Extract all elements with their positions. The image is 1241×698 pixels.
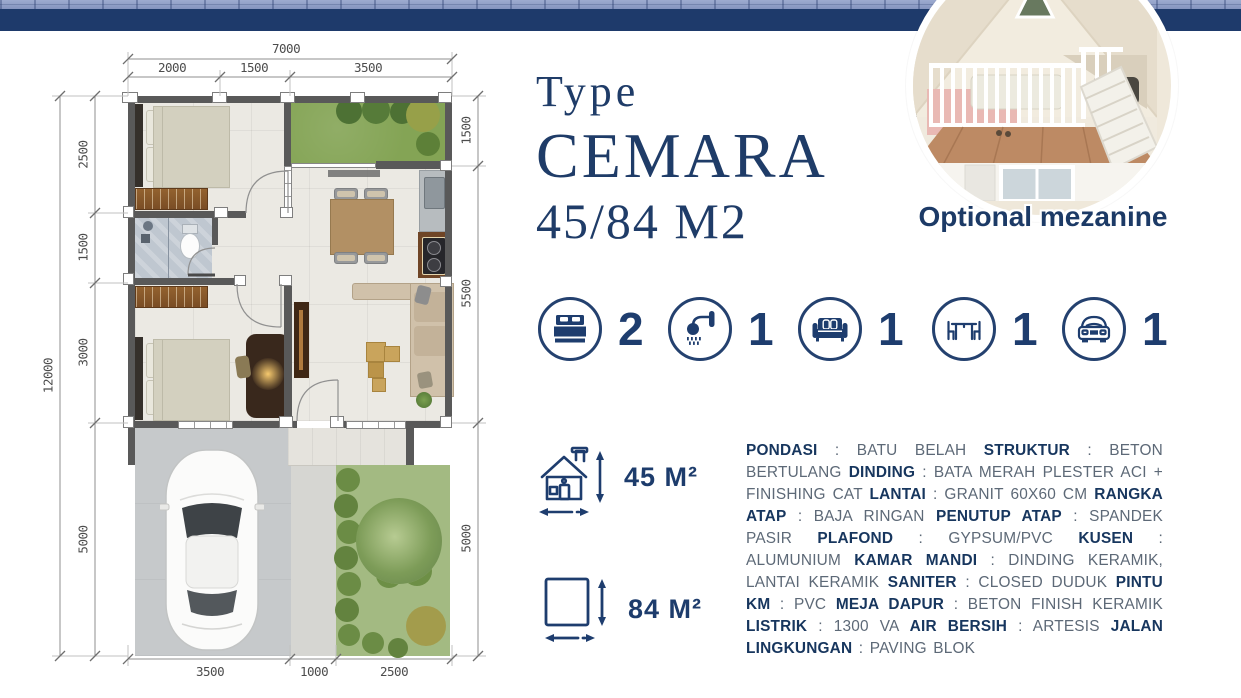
- feature-living-room: [798, 297, 862, 361]
- dim-left-seg: 2500: [76, 133, 91, 177]
- building-area-icon: [536, 446, 612, 522]
- living-room-count: 1: [878, 297, 904, 361]
- dining-table-icon: [944, 313, 984, 345]
- dim-right-seg: 1500: [459, 109, 474, 153]
- house-type-name: CEMARA: [536, 124, 828, 188]
- dim-bottom-seg: 3500: [196, 664, 224, 679]
- feature-bedrooms: [538, 297, 602, 361]
- floor-plan: 7000 2000 1500 3500 12000 2500 1500 3000…: [0, 0, 520, 698]
- feature-dining-set: [932, 297, 996, 361]
- specs-paragraph: PONDASI : BATU BELAH STRUKTUR : BETON BE…: [746, 440, 1163, 660]
- dim-right-seg: 5000: [459, 517, 474, 561]
- bed-icon: [550, 313, 590, 345]
- dim-bottom-seg: 2500: [380, 664, 408, 679]
- mezzanine-photo-art: [913, 0, 1157, 201]
- car-icon: [1074, 313, 1114, 345]
- land-area-label: 84 M²: [628, 594, 702, 625]
- feature-carport: [1062, 297, 1126, 361]
- sofa-icon: [810, 313, 850, 345]
- dim-left-seg: 5000: [76, 518, 91, 562]
- dining-set-count: 1: [1012, 297, 1038, 361]
- dim-left-seg: 3000: [76, 331, 91, 375]
- brochure-page: 7000 2000 1500 3500 12000 2500 1500 3000…: [0, 0, 1241, 698]
- building-area-label: 45 M²: [624, 462, 698, 493]
- bedroom-count: 2: [618, 297, 644, 361]
- dim-top-total: 7000: [272, 41, 300, 56]
- photo-caption: Optional mezanine: [898, 201, 1188, 233]
- carport-count: 1: [1142, 297, 1168, 361]
- feature-bathrooms: [668, 297, 732, 361]
- dim-left-total: 12000: [41, 354, 56, 398]
- dim-right-seg: 5500: [459, 272, 474, 316]
- house-type-size: 45/84 M2: [536, 196, 828, 246]
- title-block: Type CEMARA 45/84 M2: [536, 70, 828, 246]
- mezzanine-photo: [906, 0, 1178, 222]
- dim-top-seg: 3500: [354, 60, 382, 75]
- shower-icon: [680, 310, 720, 348]
- dim-bottom-seg: 1000: [300, 664, 328, 679]
- type-label: Type: [536, 70, 828, 114]
- dim-top-seg: 2000: [158, 60, 186, 75]
- bathroom-count: 1: [748, 297, 774, 361]
- dim-top-seg: 1500: [240, 60, 268, 75]
- dim-left-seg: 1500: [76, 226, 91, 270]
- land-area-icon: [540, 575, 616, 647]
